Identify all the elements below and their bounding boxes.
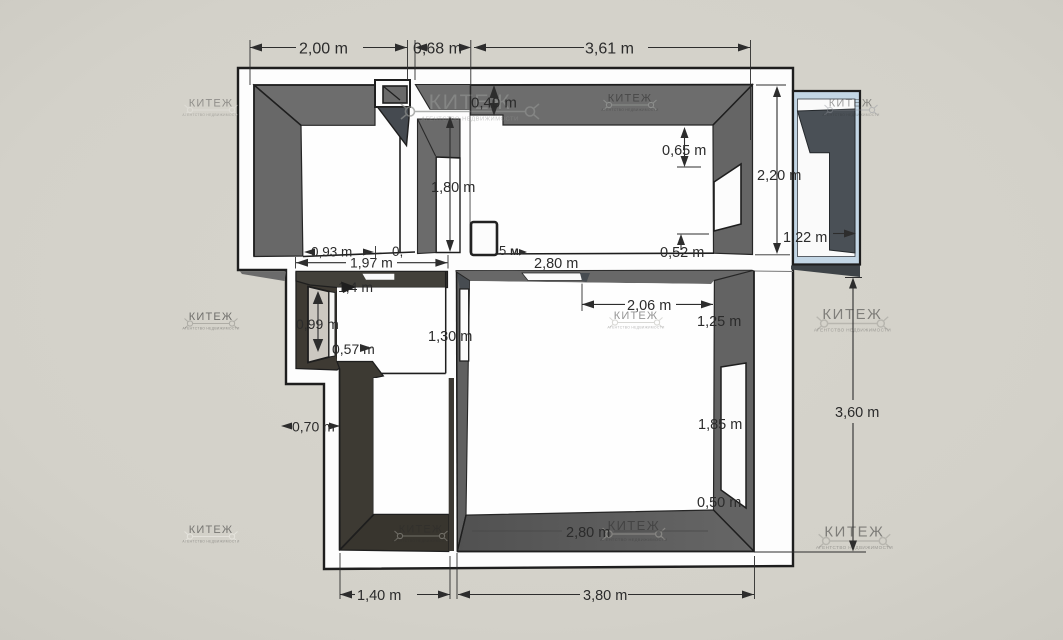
- svg-text:1,22 m: 1,22 m: [783, 230, 827, 246]
- svg-text:5: 5: [499, 243, 506, 258]
- svg-text:0,65 m: 0,65 m: [662, 143, 706, 159]
- svg-text:АГЕНТСТВО НЕДВИЖИМОСТИ: АГЕНТСТВО НЕДВИЖИМОСТИ: [421, 117, 519, 123]
- svg-text:1,85 m: 1,85 m: [698, 417, 742, 433]
- svg-text:1,80 m: 1,80 m: [431, 180, 475, 196]
- svg-text:3,61 m: 3,61 m: [585, 41, 634, 58]
- svg-text:1,97 m: 1,97 m: [350, 255, 393, 271]
- svg-text:2,80 m: 2,80 m: [534, 256, 578, 272]
- svg-text:0,68 m: 0,68 m: [413, 41, 462, 58]
- svg-text:0,99 m: 0,99 m: [296, 316, 339, 332]
- svg-text:1,25 m: 1,25 m: [697, 314, 741, 330]
- svg-text:0,50 m: 0,50 m: [697, 495, 741, 511]
- svg-text:0,52 m: 0,52 m: [660, 245, 704, 261]
- svg-text:0,40 m: 0,40 m: [471, 95, 517, 112]
- svg-text:0,93 m: 0,93 m: [311, 245, 352, 260]
- svg-text:2,20 m: 2,20 m: [757, 168, 801, 184]
- svg-text:3,60 m: 3,60 m: [835, 405, 879, 421]
- svg-text:1,30 m: 1,30 m: [428, 329, 472, 345]
- svg-text:2,80 m: 2,80 m: [566, 525, 610, 541]
- svg-text:3,80 m: 3,80 m: [583, 588, 627, 604]
- svg-text:1,40 m: 1,40 m: [357, 588, 401, 604]
- svg-text:0,: 0,: [392, 244, 403, 259]
- svg-text:2,00 m: 2,00 m: [299, 41, 348, 58]
- svg-text:м: м: [510, 244, 519, 258]
- svg-text:0,70 m: 0,70 m: [292, 419, 335, 435]
- svg-text:2,06 m: 2,06 m: [627, 298, 671, 314]
